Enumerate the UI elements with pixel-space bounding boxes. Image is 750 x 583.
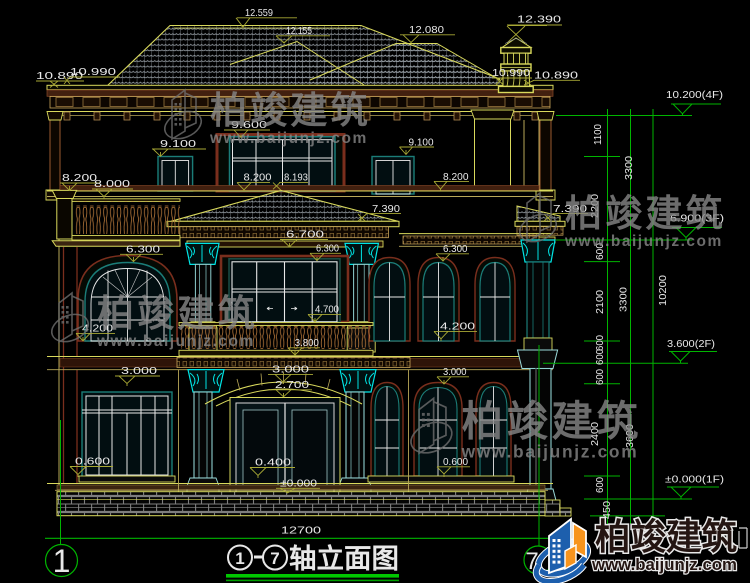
svg-text:1: 1 — [235, 549, 244, 568]
svg-text:www.baijunjz.com: www.baijunjz.com — [96, 333, 255, 350]
svg-text:1100: 1100 — [592, 124, 604, 145]
svg-text:4.200: 4.200 — [440, 321, 475, 333]
svg-text:www.baijunjz.com: www.baijunjz.com — [209, 130, 368, 147]
svg-text:8.193: 8.193 — [284, 172, 308, 184]
svg-text:www.baijunjz.com: www.baijunjz.com — [461, 442, 639, 462]
svg-text:10.200(4F): 10.200(4F) — [666, 89, 723, 101]
svg-text:±0.000: ±0.000 — [280, 478, 317, 490]
svg-text:www.baijunjz.com: www.baijunjz.com — [564, 233, 723, 250]
svg-text:柏竣建筑: 柏竣建筑 — [565, 192, 726, 234]
svg-text:3.600(2F): 3.600(2F) — [667, 338, 715, 350]
svg-text:柏竣建筑: 柏竣建筑 — [210, 89, 371, 131]
svg-text:轴立面图: 轴立面图 — [289, 543, 399, 574]
svg-text:4.700: 4.700 — [315, 304, 339, 316]
svg-text:600: 600 — [594, 335, 606, 351]
svg-text:12700: 12700 — [281, 525, 321, 537]
svg-text:柏竣建筑: 柏竣建筑 — [462, 397, 642, 444]
svg-text:8.200: 8.200 — [244, 172, 272, 184]
svg-text:3.000: 3.000 — [121, 365, 157, 377]
svg-text:柏竣建筑: 柏竣建筑 — [97, 292, 258, 334]
svg-text:8.000: 8.000 — [94, 178, 130, 190]
svg-text:12.559: 12.559 — [245, 7, 273, 19]
svg-text:600: 600 — [594, 477, 606, 493]
svg-text:柏竣建筑: 柏竣建筑 — [595, 516, 737, 557]
svg-text:0.400: 0.400 — [255, 457, 291, 469]
svg-text:0.600: 0.600 — [75, 456, 110, 468]
svg-text:10.890: 10.890 — [534, 70, 578, 82]
svg-text:±0.000(1F): ±0.000(1F) — [665, 474, 724, 486]
svg-text:600: 600 — [594, 369, 606, 385]
svg-text:7: 7 — [270, 549, 279, 568]
svg-text:8.200: 8.200 — [62, 172, 97, 184]
svg-text:9.100: 9.100 — [160, 138, 196, 150]
svg-text:3.800: 3.800 — [295, 337, 319, 349]
svg-text:2100: 2100 — [594, 290, 606, 314]
svg-text:10.990: 10.990 — [70, 66, 116, 78]
svg-text:2.700: 2.700 — [275, 379, 309, 391]
svg-text:3300: 3300 — [618, 287, 630, 312]
svg-text:6.300: 6.300 — [443, 243, 468, 255]
svg-text:6.300: 6.300 — [316, 243, 339, 255]
svg-text:12.155: 12.155 — [286, 25, 312, 37]
svg-text:www.baijunjz.com: www.baijunjz.com — [591, 556, 737, 574]
svg-text:10200: 10200 — [657, 275, 669, 306]
svg-text:10.990: 10.990 — [492, 67, 530, 79]
svg-text:12.080: 12.080 — [409, 24, 444, 36]
svg-text:3300: 3300 — [623, 156, 635, 180]
svg-text:12.390: 12.390 — [517, 14, 561, 26]
svg-text:600: 600 — [594, 349, 606, 365]
svg-text:6.300: 6.300 — [126, 244, 160, 256]
svg-text:1: 1 — [53, 543, 71, 579]
svg-text:3.000: 3.000 — [443, 366, 467, 378]
svg-text:6.700: 6.700 — [286, 229, 324, 241]
svg-text:3.000: 3.000 — [272, 364, 309, 376]
